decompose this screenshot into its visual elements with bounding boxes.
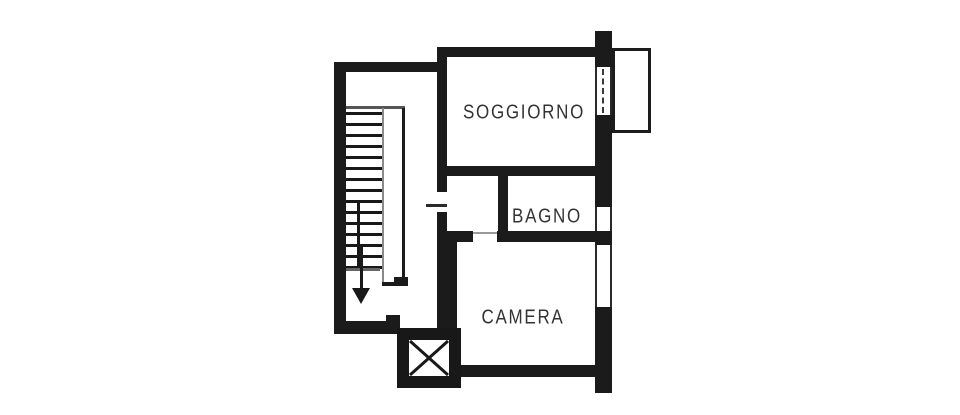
room-label-soggiorno: SOGGIORNO [463, 102, 585, 125]
stair-rail-foot [394, 277, 408, 286]
camera-window [595, 245, 612, 307]
bagno-window [595, 207, 612, 231]
right-wall-mid-upper [595, 115, 612, 207]
stair-landing-edge [346, 268, 380, 271]
stair-down-arrow-icon [352, 288, 370, 304]
stair-left-wall [334, 62, 346, 334]
soggiorno-bottom-wall [437, 166, 595, 176]
door-opening-stair-hall [437, 192, 447, 212]
door-leaf-line [426, 204, 447, 207]
camera-bottom-wall [457, 365, 595, 377]
stair-rail-outer [402, 108, 405, 284]
right-wall-bottom [595, 307, 612, 393]
stair-well-top-line [346, 106, 405, 109]
stair-steps [346, 112, 382, 270]
balcony [612, 48, 651, 133]
right-wall-mid-lower [595, 231, 612, 245]
soggiorno-top-wall [437, 47, 597, 57]
stair-rail-inner [382, 108, 384, 286]
camera-left-wall [445, 239, 457, 330]
floor-plan: SOGGIORNO BAGNO CAMERA [0, 0, 960, 415]
stair-top-wall [334, 62, 447, 72]
room-label-camera: CAMERA [482, 307, 565, 330]
door-opening-hall-camera [473, 232, 497, 234]
stair-arrow-shaft [360, 246, 363, 290]
room-label-bagno: BAGNO [512, 206, 582, 229]
elevator-x-icon [409, 340, 449, 376]
right-wall-top-stub [595, 31, 612, 67]
bagno-bottom-wall [497, 231, 595, 242]
window-glazing-line [602, 69, 604, 113]
